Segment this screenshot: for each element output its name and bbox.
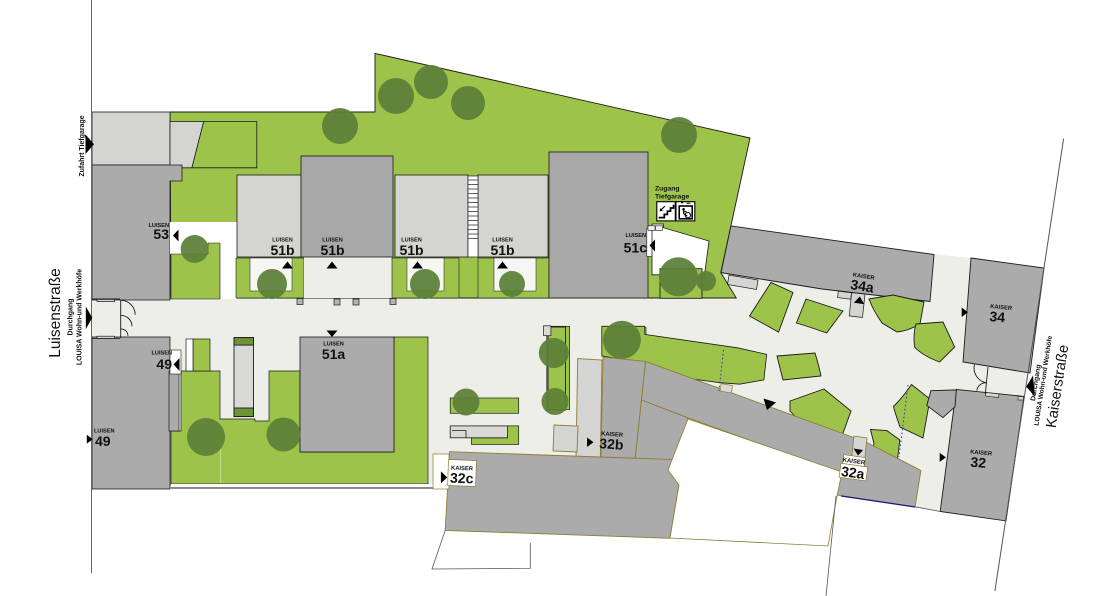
svg-text:51b: 51b (270, 242, 294, 258)
svg-text:Zugang: Zugang (655, 186, 680, 193)
svg-text:Zufahrt Tiefgarage: Zufahrt Tiefgarage (79, 115, 86, 176)
svg-text:32b: 32b (599, 435, 624, 453)
svg-text:51b: 51b (490, 242, 514, 258)
svg-text:49: 49 (95, 433, 111, 449)
svg-text:LUISEN: LUISEN (625, 233, 646, 239)
svg-text:51c: 51c (624, 240, 648, 256)
svg-text:32c: 32c (450, 470, 474, 487)
svg-text:51b: 51b (320, 242, 344, 258)
svg-text:Durchgang: Durchgang (68, 299, 75, 336)
svg-text:LOUISA Wohn-und Werkhöfe: LOUISA Wohn-und Werkhöfe (77, 269, 84, 365)
svg-text:49: 49 (156, 356, 172, 372)
svg-text:51b: 51b (399, 242, 423, 258)
svg-text:Tiefgarage: Tiefgarage (655, 194, 689, 201)
svg-text:32: 32 (970, 454, 987, 471)
svg-text:53: 53 (153, 226, 169, 242)
svg-text:Luisenstraße: Luisenstraße (47, 268, 64, 358)
svg-text:51a: 51a (322, 346, 346, 362)
svg-text:34: 34 (989, 308, 1006, 325)
svg-text:32a: 32a (840, 463, 866, 482)
